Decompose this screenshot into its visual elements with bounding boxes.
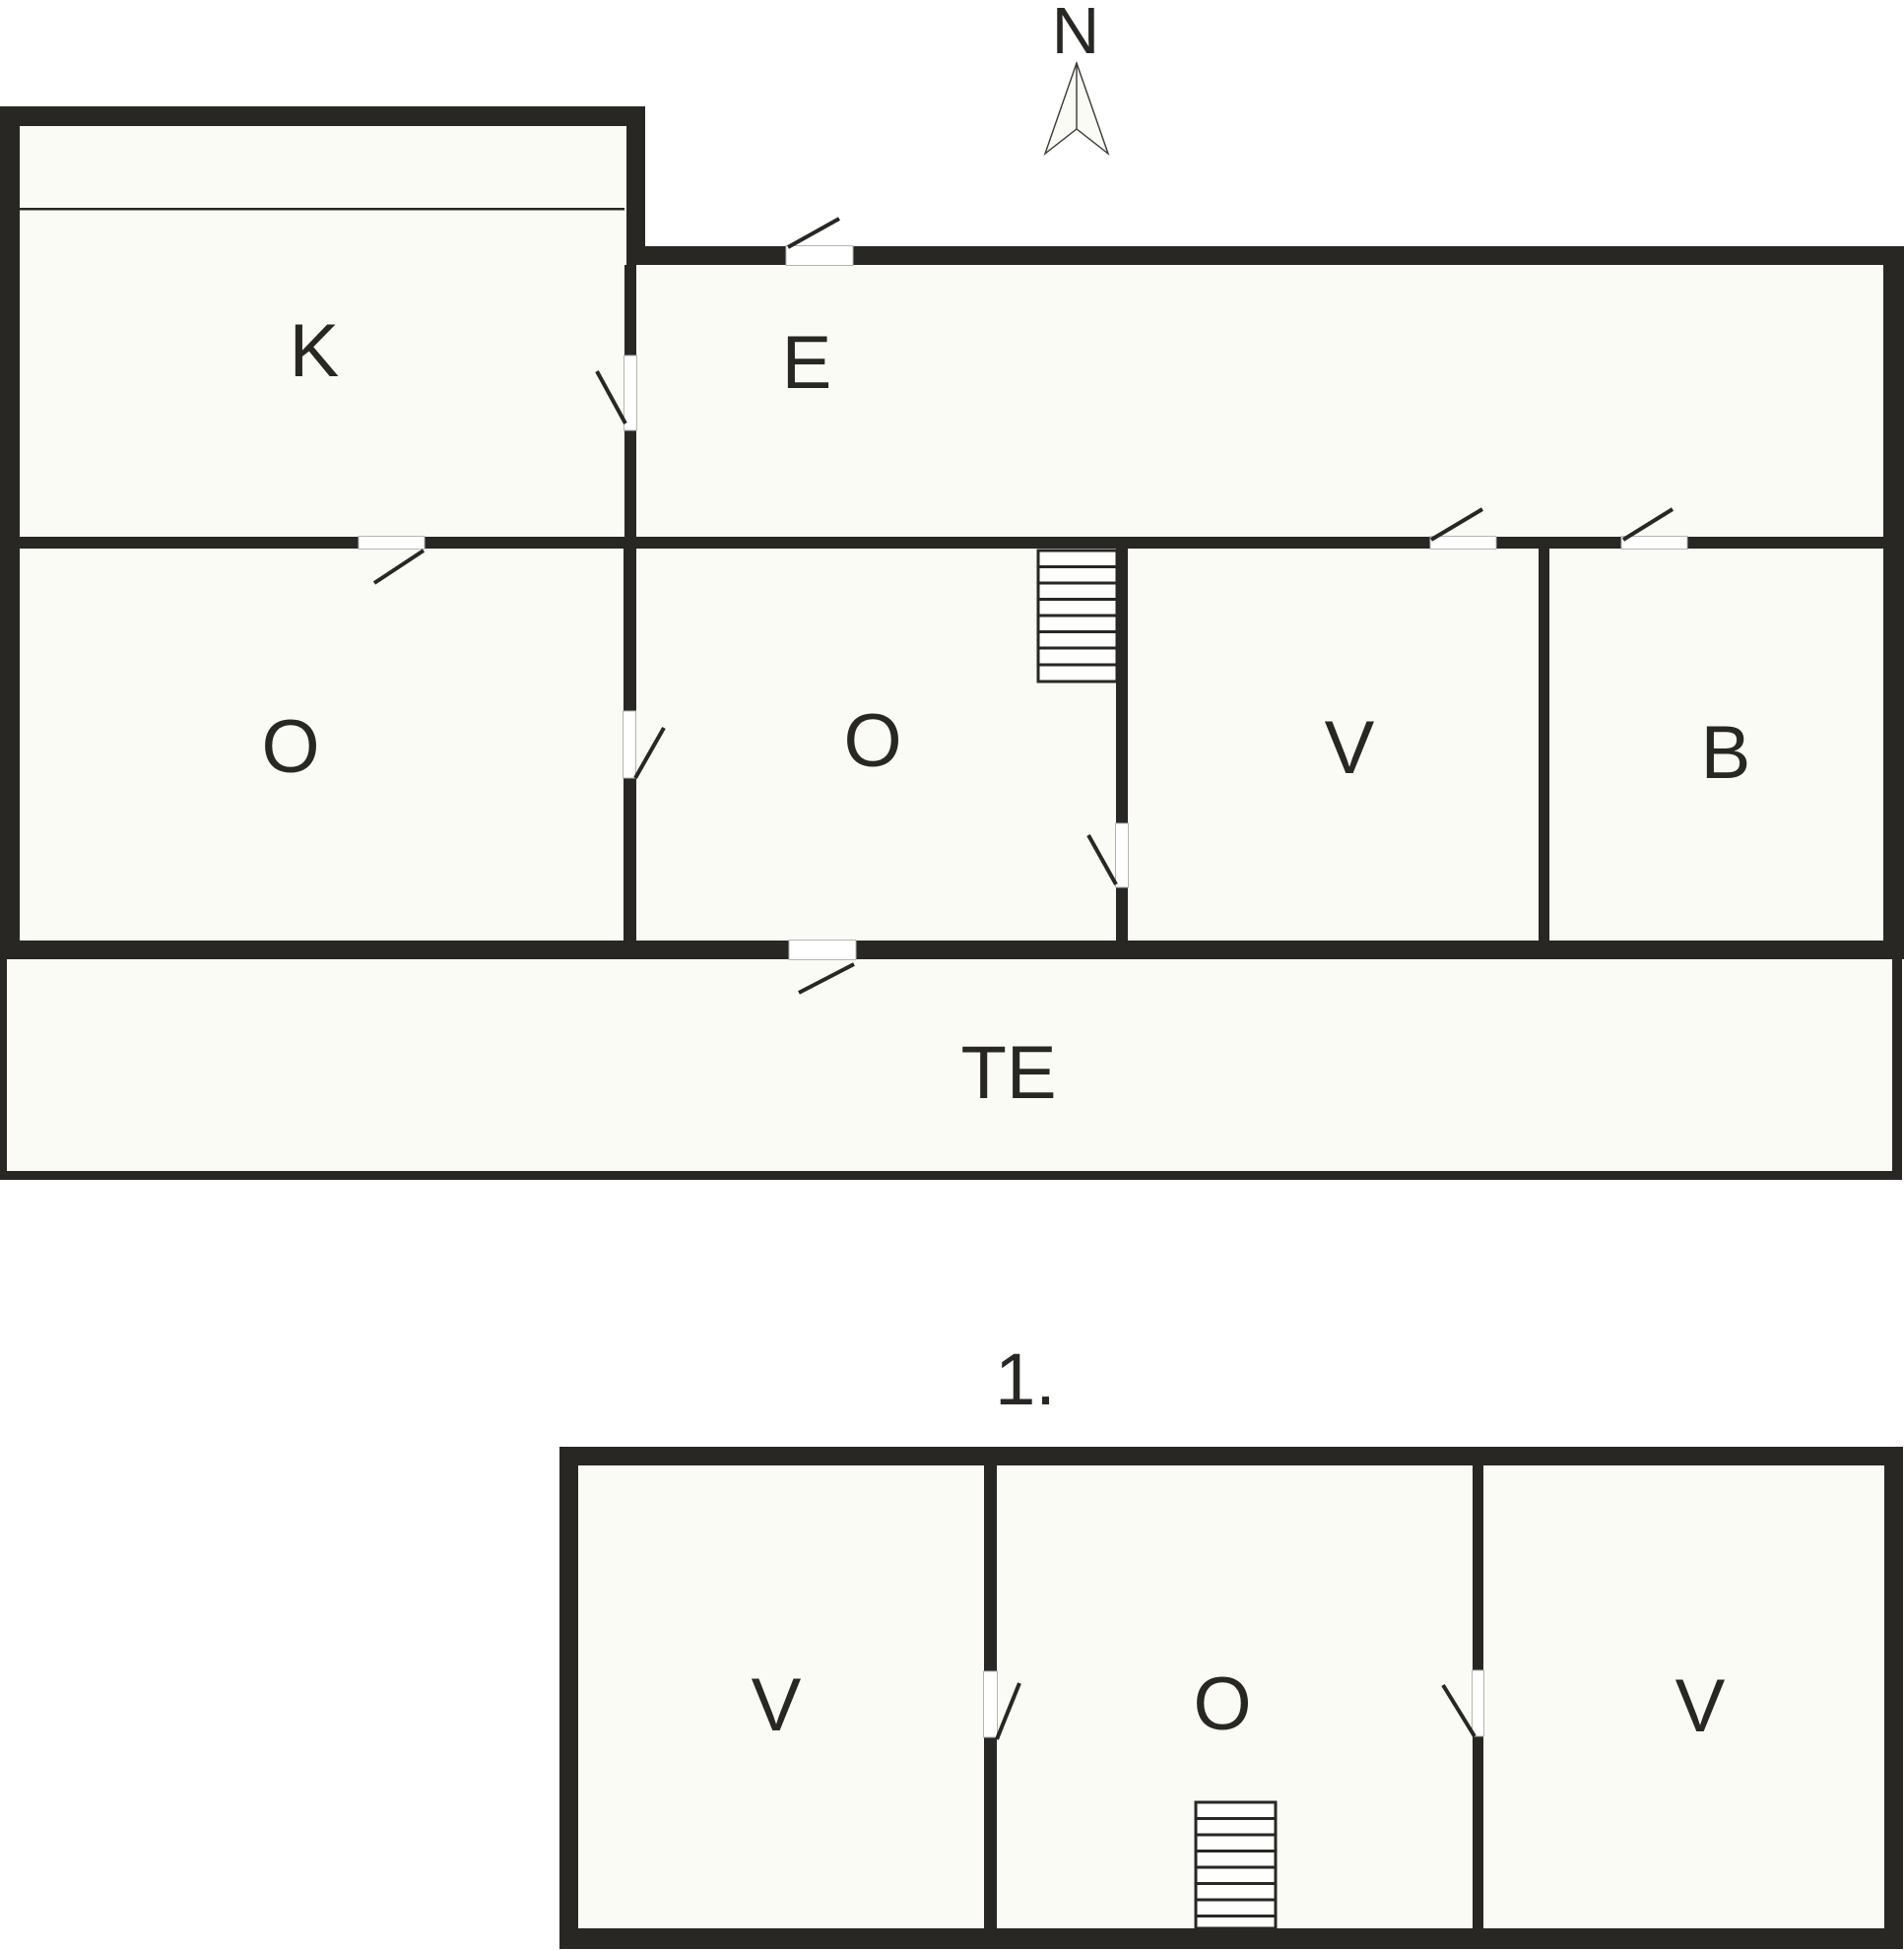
svg-text:E: E bbox=[782, 321, 832, 405]
svg-text:TE: TE bbox=[960, 1031, 1056, 1115]
svg-text:V: V bbox=[1675, 1664, 1726, 1748]
svg-text:K: K bbox=[290, 309, 340, 393]
svg-text:B: B bbox=[1701, 711, 1751, 795]
svg-text:V: V bbox=[752, 1663, 802, 1747]
svg-text:O: O bbox=[261, 705, 319, 789]
svg-text:O: O bbox=[843, 699, 901, 783]
svg-text:N: N bbox=[1052, 0, 1099, 68]
svg-text:1.: 1. bbox=[995, 1338, 1056, 1420]
svg-text:O: O bbox=[1193, 1662, 1251, 1746]
svg-text:V: V bbox=[1325, 706, 1375, 790]
